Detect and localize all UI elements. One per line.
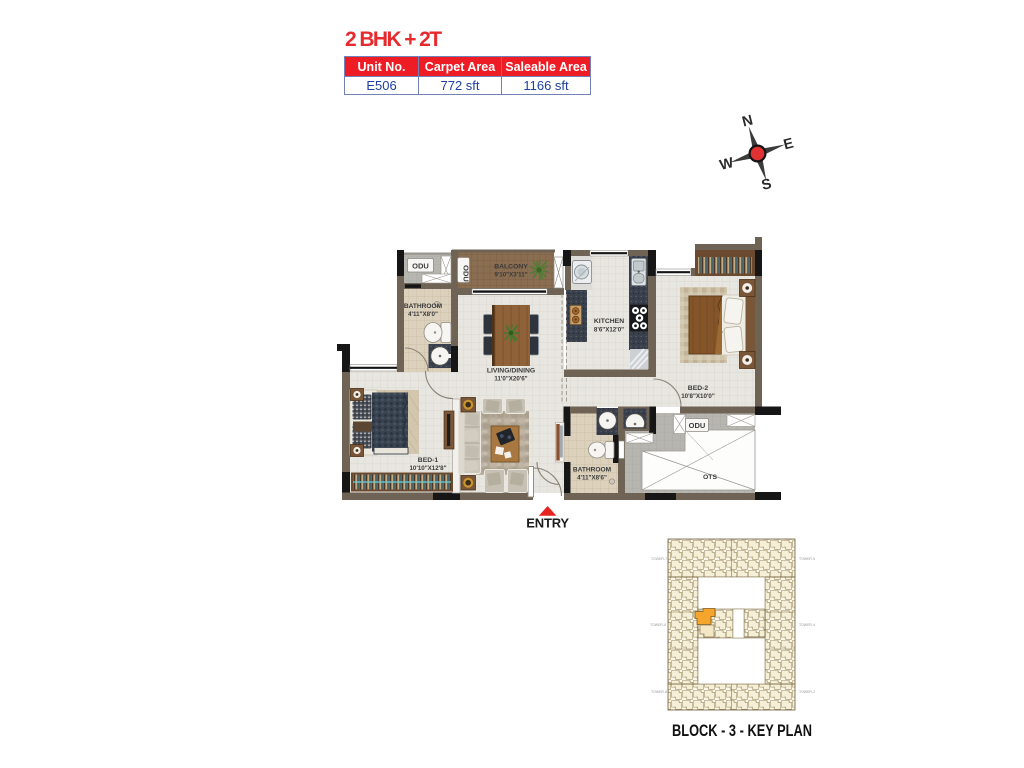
svg-text:TOWER-8: TOWER-8	[651, 690, 667, 694]
svg-text:8'6"X12'0": 8'6"X12'0"	[594, 327, 624, 334]
svg-text:S: S	[760, 176, 774, 194]
svg-text:ODU: ODU	[462, 265, 471, 282]
svg-text:TOWER-4: TOWER-4	[799, 623, 815, 627]
svg-text:BATHROOM: BATHROOM	[573, 467, 612, 474]
svg-text:OTS: OTS	[703, 474, 717, 481]
svg-text:BALCONY: BALCONY	[494, 264, 528, 271]
svg-text:LIVING/DINING: LIVING/DINING	[487, 368, 535, 375]
svg-text:BATHROOM: BATHROOM	[404, 303, 443, 310]
svg-text:BED-2: BED-2	[688, 385, 709, 392]
svg-text:4'11"X8'6": 4'11"X8'6"	[577, 475, 607, 482]
svg-text:TOWER-6: TOWER-6	[650, 623, 666, 627]
svg-text:TOWER-5: TOWER-5	[799, 557, 815, 561]
svg-text:ODU: ODU	[689, 421, 706, 430]
svg-text:W: W	[718, 155, 735, 174]
svg-text:BED-1: BED-1	[418, 457, 439, 464]
svg-text:ODU: ODU	[412, 262, 429, 271]
svg-text:KITCHEN: KITCHEN	[594, 318, 624, 325]
svg-text:9'10"X3'11": 9'10"X3'11"	[494, 272, 527, 279]
svg-text:BLOCK - 3 - KEY PLAN: BLOCK - 3 - KEY PLAN	[672, 722, 812, 740]
svg-text:ENTRY: ENTRY	[526, 516, 569, 531]
svg-text:E: E	[782, 135, 796, 153]
svg-text:4'11"X8'0": 4'11"X8'0"	[408, 311, 438, 318]
svg-text:10'8"X10'0": 10'8"X10'0"	[681, 393, 715, 400]
svg-text:11'0"X20'6": 11'0"X20'6"	[494, 376, 527, 383]
svg-text:N: N	[741, 112, 755, 130]
svg-text:TOWER-2: TOWER-2	[799, 690, 815, 694]
svg-text:10'10"X12'8": 10'10"X12'8"	[409, 465, 446, 472]
svg-text:TOWER-7: TOWER-7	[651, 557, 667, 561]
